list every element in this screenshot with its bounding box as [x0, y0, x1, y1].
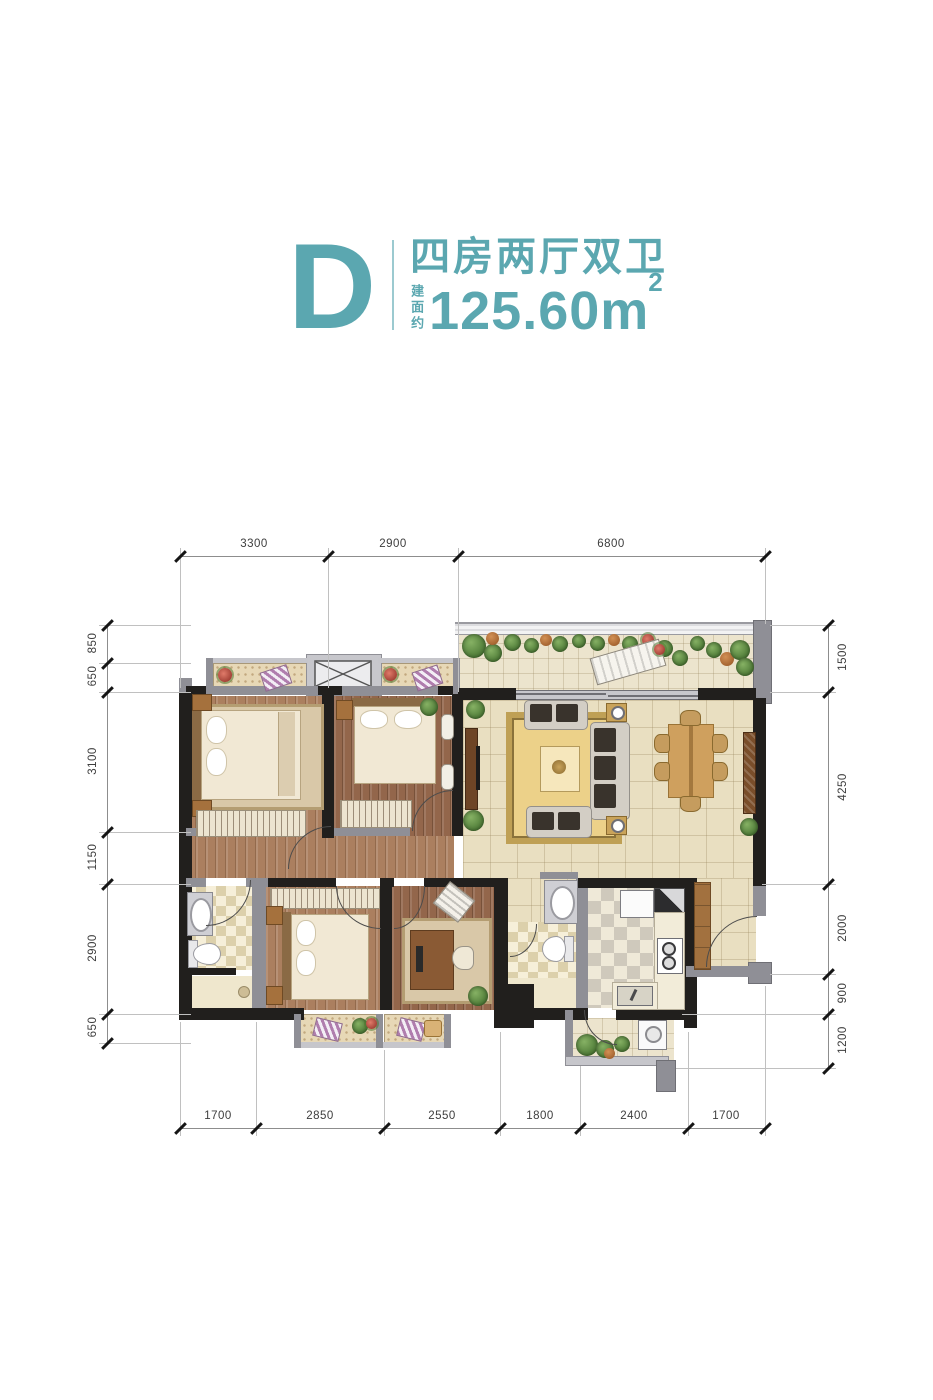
dim-label: 2550 — [407, 1110, 477, 1122]
title-block: D 四房两厅双卫 建面约 125.60 m2 — [288, 236, 668, 336]
sideboard — [743, 732, 756, 814]
dim-label: 1800 — [505, 1110, 575, 1122]
wall-bath1-bed3 — [252, 878, 266, 1010]
title-divider — [392, 240, 394, 330]
bay3-outer-sill — [298, 1042, 380, 1048]
plant — [463, 810, 484, 831]
dim-label: 2000 — [837, 893, 849, 963]
plant — [484, 644, 502, 662]
sofa-cushion — [558, 812, 580, 830]
extension-line — [458, 548, 459, 692]
pillow — [360, 710, 388, 729]
flower — [654, 644, 665, 655]
sliding-door-leaf — [516, 693, 606, 695]
bath2-basin — [550, 886, 575, 920]
flower — [218, 668, 232, 682]
service-balcony-column — [656, 1060, 676, 1092]
bay4-outer-sill — [382, 1042, 450, 1048]
area-exponent: 2 — [648, 267, 662, 297]
bedroom3-headboard — [282, 912, 291, 1000]
wall-corner-mass — [494, 984, 534, 1028]
extension-line — [180, 548, 181, 688]
wall-sconce — [441, 714, 454, 740]
extension-line — [765, 548, 766, 624]
wall-bed2-south — [334, 828, 410, 836]
wall-living-north-left — [458, 688, 516, 700]
flower-pot — [604, 1048, 615, 1059]
extension-line — [328, 548, 329, 688]
desk-monitor — [416, 946, 423, 972]
dim-label: 2900 — [87, 913, 99, 983]
balcony-rail — [455, 622, 755, 635]
plant — [552, 636, 568, 652]
sofa-cushion — [594, 756, 616, 780]
dining-chair — [712, 734, 728, 753]
area-row: 建面约 125.60 m2 — [410, 284, 668, 335]
flower — [384, 668, 397, 681]
kitchen-corner-counter — [654, 888, 685, 915]
extension-line — [99, 663, 191, 664]
nightstand — [336, 700, 353, 720]
bay-basket — [424, 1020, 442, 1037]
wall-bed3-north — [268, 878, 336, 887]
layout-name: 四房两厅双卫 — [410, 236, 668, 278]
pillow — [296, 920, 316, 946]
dining-chair — [654, 734, 670, 753]
wall-bed3-study — [380, 887, 392, 1010]
nightstand — [266, 986, 283, 1005]
stove-burner — [662, 942, 676, 956]
extension-line — [676, 1068, 836, 1069]
floorplan-page: D 四房两厅双卫 建面约 125.60 m2 — [0, 0, 933, 1400]
wall-pier — [318, 686, 342, 695]
bath2-toilet — [542, 936, 566, 962]
wall-bath1-north — [186, 878, 206, 887]
unit-letter: D — [288, 236, 374, 336]
wall-bath2-basin — [540, 872, 578, 879]
dim-label: 1500 — [837, 622, 849, 692]
flower-pot — [486, 632, 499, 645]
plant — [572, 634, 586, 648]
dim-label: 650 — [87, 641, 99, 711]
dim-label: 2900 — [358, 538, 428, 550]
bedroom1-bed-runner — [278, 712, 295, 796]
sliding-door-leaf — [608, 695, 698, 697]
desk-chair — [452, 946, 474, 970]
wall-living-north-right — [698, 688, 756, 700]
plant — [468, 986, 488, 1006]
wall-kitchen-north — [578, 878, 686, 888]
extension-line — [180, 1022, 181, 1136]
dim-label: 1150 — [87, 822, 99, 892]
dining-chair — [654, 762, 670, 781]
plant — [504, 634, 521, 651]
dim-line-bottom — [180, 1128, 766, 1129]
bedroom2-shelf — [340, 800, 412, 828]
dim-label: 4250 — [837, 752, 849, 822]
ac-unit-icon — [314, 660, 372, 688]
flower-pot — [608, 634, 620, 646]
pillow — [206, 716, 227, 744]
pillow — [296, 950, 316, 976]
bay1-outer-sill — [206, 658, 308, 663]
bath1-drain — [238, 986, 250, 998]
sofa-cushion — [532, 812, 554, 830]
dim-label: 650 — [87, 992, 99, 1062]
extension-line — [99, 884, 191, 885]
dim-label: 3300 — [219, 538, 289, 550]
wall-study-north — [380, 878, 394, 887]
area-value: 125.60 — [429, 289, 600, 335]
pillow — [394, 710, 422, 729]
extension-line — [688, 1032, 689, 1136]
plant — [690, 636, 705, 651]
washer-drum — [645, 1026, 662, 1043]
wall-bath1-south — [179, 1008, 304, 1020]
area-unit: m2 — [600, 289, 662, 335]
wall-service-west — [565, 1010, 573, 1062]
stove-burner — [662, 956, 676, 970]
extension-line — [99, 832, 191, 833]
dim-label: 6800 — [576, 538, 646, 550]
table-lamp — [611, 819, 625, 833]
bay2-outer-sill — [378, 658, 460, 663]
dim-label: 2850 — [285, 1110, 355, 1122]
plant — [420, 698, 438, 716]
dim-label: 3100 — [87, 726, 99, 796]
sofa-cushion — [556, 704, 578, 722]
nightstand — [266, 906, 283, 925]
sofa-cushion — [594, 728, 616, 752]
bath1-toilet — [193, 943, 221, 965]
bay-jamb — [444, 1014, 451, 1048]
extension-line — [500, 1032, 501, 1136]
flower — [366, 1018, 377, 1029]
extension-line — [682, 1014, 836, 1015]
extension-line — [99, 1014, 191, 1015]
bedroom1-wardrobe — [196, 810, 306, 837]
sofa-cushion — [594, 784, 616, 808]
dim-line-top — [180, 556, 766, 557]
plant — [736, 658, 754, 676]
pillow — [206, 748, 227, 776]
wall-bath1-divider — [186, 968, 236, 975]
bay-jamb — [206, 658, 213, 694]
nightstand — [192, 694, 212, 711]
extension-line — [384, 1050, 385, 1136]
extension-line — [256, 1022, 257, 1136]
wall-entry-east — [753, 886, 766, 916]
dining-chair — [712, 762, 728, 781]
plant — [730, 640, 750, 660]
extension-line — [99, 625, 191, 626]
plant — [672, 650, 688, 666]
dim-label: 2400 — [599, 1110, 669, 1122]
kitchen-fridge — [620, 890, 654, 918]
dining-chair — [680, 796, 701, 812]
plant — [590, 636, 605, 651]
dim-label: 1200 — [837, 1005, 849, 1075]
plant — [466, 700, 485, 719]
bay-jamb — [294, 1014, 301, 1048]
dining-table — [668, 724, 714, 798]
table-lamp — [611, 706, 625, 720]
extension-line — [99, 692, 191, 693]
plant — [524, 638, 539, 653]
area-label: 建面约 — [410, 284, 423, 332]
service-balcony-rail — [565, 1056, 669, 1066]
wall-sconce — [441, 764, 454, 790]
dining-chair — [680, 710, 701, 726]
coffee-table-decor — [552, 760, 566, 774]
plant — [740, 818, 758, 836]
extension-line — [99, 1043, 191, 1044]
flower-pot — [540, 634, 552, 646]
bedroom1-headboard — [192, 708, 201, 800]
sofa-cushion — [530, 704, 552, 722]
plant — [462, 634, 486, 658]
wall-study-north2 — [424, 878, 500, 887]
tv — [476, 746, 480, 790]
bay-jamb — [376, 1014, 383, 1048]
plant — [576, 1034, 598, 1056]
extension-line — [765, 986, 766, 1136]
dim-label: 1700 — [183, 1110, 253, 1122]
wall-bath2-south — [508, 1008, 588, 1020]
dim-label: 1700 — [691, 1110, 761, 1122]
